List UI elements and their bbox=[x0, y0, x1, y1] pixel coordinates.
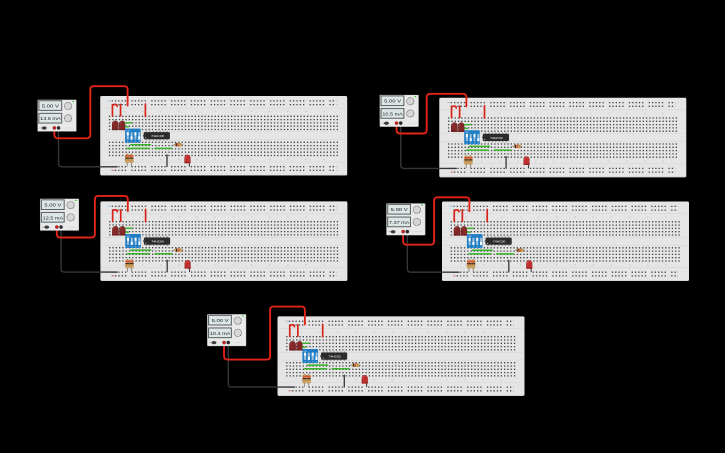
svg-text:12.5 mA: 12.5 mA bbox=[43, 215, 64, 220]
svg-text:5.00 V: 5.00 V bbox=[44, 203, 61, 208]
svg-text:10.4 mA: 10.4 mA bbox=[210, 331, 231, 336]
svg-text:5.00 V: 5.00 V bbox=[212, 318, 229, 323]
svg-text:5.00 V: 5.00 V bbox=[384, 99, 401, 104]
svg-text:10.5 mA: 10.5 mA bbox=[382, 111, 403, 116]
svg-text:5.00 V: 5.00 V bbox=[42, 104, 59, 109]
svg-text:7.37 mA: 7.37 mA bbox=[389, 220, 410, 225]
svg-text:5.00 V: 5.00 V bbox=[391, 207, 408, 212]
svg-text:74HC02: 74HC02 bbox=[328, 355, 341, 359]
svg-text:74HC32: 74HC32 bbox=[490, 136, 503, 140]
svg-text:74HC08: 74HC08 bbox=[151, 134, 164, 138]
svg-text:74HC04: 74HC04 bbox=[151, 240, 164, 244]
svg-text:74HC00: 74HC00 bbox=[493, 240, 506, 244]
svg-text:13.5 mA: 13.5 mA bbox=[40, 116, 61, 121]
